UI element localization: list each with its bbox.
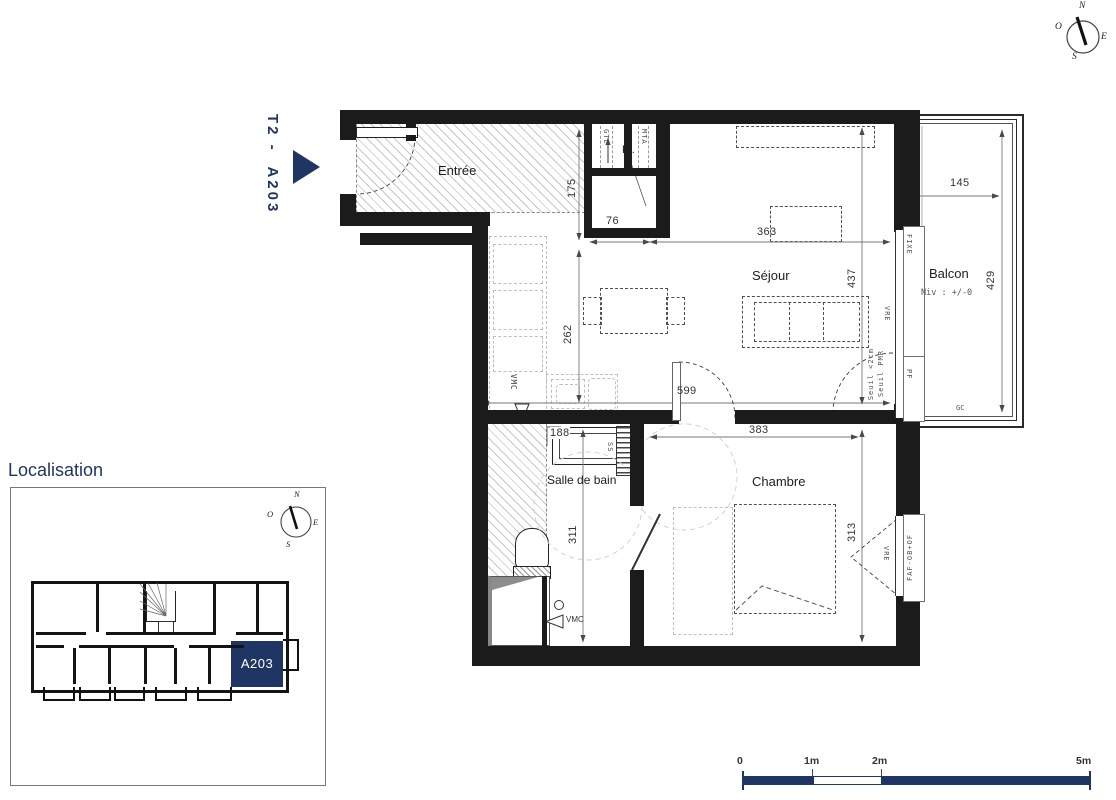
compass-s-label: S <box>1072 52 1077 62</box>
dim-sejour-depth: 437 <box>846 268 858 288</box>
dim-sejour-width: 363 <box>757 226 777 238</box>
room-label-chambre: Chambre <box>752 474 805 489</box>
scale-1m-label: 1m <box>804 755 819 767</box>
entry-door-handle-icon <box>406 121 416 128</box>
bathroom-door-leaf <box>632 514 660 570</box>
room-label-entree: Entrée <box>438 163 476 178</box>
scale-2m-label: 2m <box>872 755 887 767</box>
bed-blanket-fold <box>736 586 833 610</box>
dim-sdb-depth: 311 <box>567 525 579 544</box>
turning-circle-bath <box>534 452 642 560</box>
compass-n-label: N <box>1079 1 1085 11</box>
gtl-label: GTL <box>602 129 610 145</box>
compass-e-label: E <box>313 517 318 527</box>
compass-mini-icon <box>281 506 311 537</box>
scale-tick <box>881 769 882 776</box>
room-label-salle-de-bain: Salle de bain <box>547 473 616 487</box>
vmc-bath-label: VMC <box>566 615 584 624</box>
scale-segment-2-5 <box>882 776 1090 785</box>
compass-e-label: E <box>1101 32 1107 42</box>
entry-door-handle-icon <box>406 135 416 141</box>
stair-fan-icon <box>140 583 166 616</box>
dim-kitchen-depth: 262 <box>562 324 574 344</box>
scale-0-label: 0 <box>737 755 743 767</box>
wall <box>472 212 488 662</box>
wall <box>542 576 547 646</box>
seuil-2cm-label: Seuil <2cm <box>867 348 875 400</box>
compass-main-icon <box>1067 17 1099 53</box>
wall <box>472 410 679 424</box>
scale-5m-label: 5m <box>1076 755 1091 767</box>
wall <box>896 594 920 662</box>
wall <box>584 228 670 238</box>
scale-segment-0-1 <box>743 776 813 785</box>
dim-chambre-depth: 313 <box>846 522 858 542</box>
dim-balcon-depth: 429 <box>985 270 997 290</box>
mta-label: MTA <box>640 129 648 145</box>
room-label-sejour: Séjour <box>752 268 790 283</box>
vre-chambre-label: VRE <box>882 546 890 562</box>
localisation-title: Localisation <box>8 460 103 481</box>
wall <box>896 424 920 516</box>
sejour-window-frame-pf <box>903 356 925 422</box>
dim-entree-depth: 175 <box>566 178 578 198</box>
compass-o-label: O <box>1055 22 1062 32</box>
wall <box>340 212 490 226</box>
vre-sejour-label: VRE <box>883 306 891 322</box>
vmc-bath-triangle-icon <box>546 615 563 628</box>
wall <box>584 124 592 238</box>
wall <box>630 424 644 506</box>
scale-tick <box>812 769 813 776</box>
floor-plan-page: Entrée Séjour Balcon Niv : +/-0 Salle de… <box>0 0 1116 800</box>
gc-label: GC <box>956 404 964 412</box>
dim-balcon-width: 145 <box>950 177 970 189</box>
faf-label: FAF-OB+OF <box>906 534 914 581</box>
wall <box>340 110 356 140</box>
fixe-label: FIXE <box>905 234 913 255</box>
scale-bar: 0 1m 2m 5m <box>730 750 1100 790</box>
wall <box>630 570 644 648</box>
dim-chambre-width: 383 <box>749 424 769 436</box>
wall <box>894 110 920 232</box>
ss-label: SS <box>606 442 614 452</box>
pf-label: PF <box>905 369 913 379</box>
dim-placard-width: 76 <box>606 215 619 227</box>
compass-o-label: O <box>267 509 273 519</box>
compass-n-label: N <box>294 489 300 499</box>
wall <box>340 110 908 124</box>
wall <box>584 168 664 176</box>
turning-circle-chambre <box>631 424 737 530</box>
placard-label: Pl. <box>622 144 635 156</box>
entry-door-swing <box>357 136 415 194</box>
vmc-kitchen-label: VMC <box>509 374 518 391</box>
room-label-balcon: Balcon <box>929 266 969 281</box>
wall <box>472 646 920 666</box>
scale-segment-1-2 <box>813 776 882 785</box>
placard-leader-line <box>630 160 646 206</box>
dim-sejour-total-width: 599 <box>677 385 697 397</box>
compass-s-label: S <box>286 539 290 549</box>
wall <box>360 233 477 245</box>
balcon-level-label: Niv : +/-0 <box>921 288 972 298</box>
unit-ref-label: T2 - A203 <box>264 114 281 214</box>
wall <box>735 410 896 424</box>
unit-arrow-icon <box>293 150 320 184</box>
seuil-pmr-label: Seuil PMR <box>877 350 885 397</box>
dim-sdb-width: 188 <box>550 427 570 439</box>
